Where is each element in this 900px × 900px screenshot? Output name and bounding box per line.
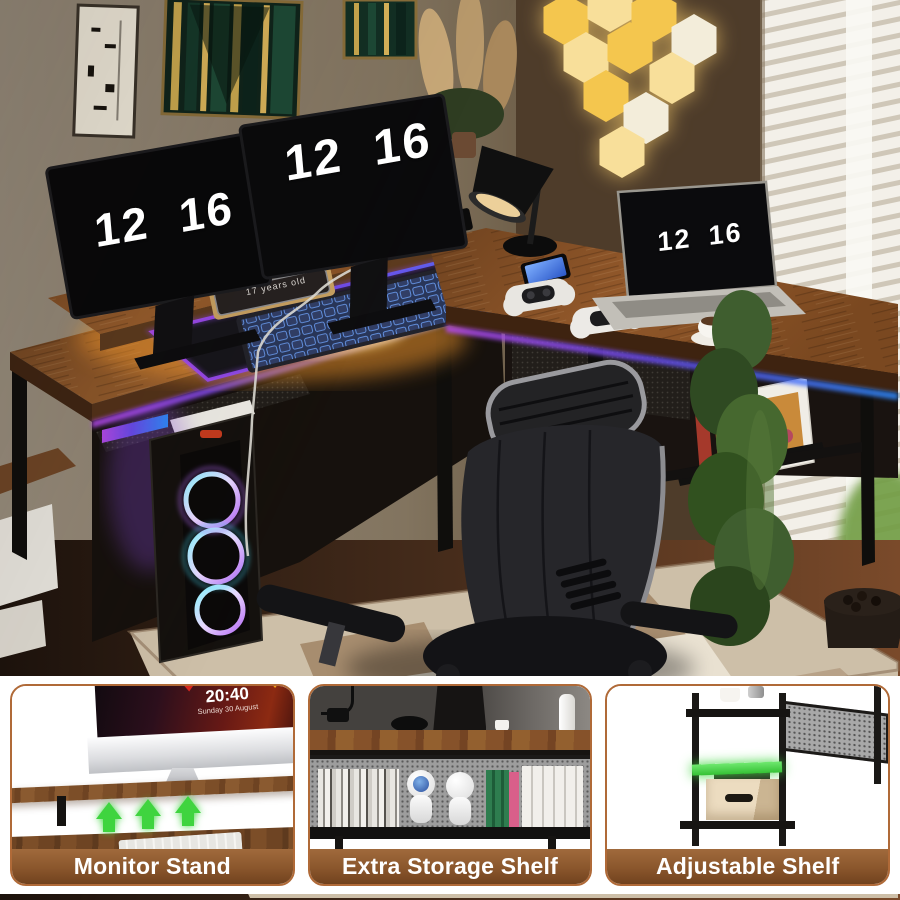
book-spines <box>318 769 399 829</box>
white-books <box>522 766 584 828</box>
astronaut-visor <box>413 776 429 792</box>
callout-extra-storage-shelf: Extra Storage Shelf <box>308 684 593 886</box>
shelf-leg <box>335 836 343 849</box>
callout-label: Monitor Stand <box>12 849 293 884</box>
monitor-stand-leg <box>57 796 66 826</box>
callout-monitor-stand: 20:40 Sunday 30 August Monitor Stand <box>10 684 295 886</box>
product-image: 12 16 12 16 12 16 17 years old 20:40 Sun… <box>0 0 900 900</box>
mesh-side-panel <box>779 700 888 763</box>
astronaut-body <box>410 795 432 823</box>
white-cup <box>720 688 740 702</box>
steel-canister <box>748 686 764 698</box>
green-books <box>486 770 508 828</box>
arrow-up-icon <box>96 802 122 819</box>
astronaut-figurine <box>405 770 437 828</box>
callout-label: Extra Storage Shelf <box>310 849 591 884</box>
callout-adjustable-shelf: Adjustable Shelf <box>605 684 890 886</box>
shelf-board-top <box>686 709 790 717</box>
shelf-board-bottom <box>680 821 795 829</box>
storage-shelf-scene <box>310 686 591 849</box>
arrow-up-icon <box>135 799 161 816</box>
feature-callouts: 20:40 Sunday 30 August Monitor Stand <box>0 676 900 894</box>
box-handle-slot <box>725 794 753 802</box>
callout-frame: 20:40 Sunday 30 August Monitor Stand <box>10 684 295 886</box>
shelf-leg <box>548 836 556 849</box>
shelf-post <box>874 686 881 784</box>
callout-label: Adjustable Shelf <box>607 849 888 884</box>
adjustable-shelf-scene <box>607 686 888 849</box>
monitor-back <box>433 686 486 732</box>
astronaut-figurine <box>444 772 476 830</box>
monitor-stand-scene: 20:40 Sunday 30 August <box>12 686 293 849</box>
pink-book <box>509 772 519 828</box>
astronaut-helmet <box>446 772 474 800</box>
arrow-up-icon <box>175 796 201 813</box>
astronaut-body <box>449 797 471 825</box>
callout-frame: Adjustable Shelf <box>605 684 890 886</box>
callout-frame: Extra Storage Shelf <box>308 684 593 886</box>
desk-top-edge <box>310 730 591 755</box>
power-plug <box>327 708 349 722</box>
